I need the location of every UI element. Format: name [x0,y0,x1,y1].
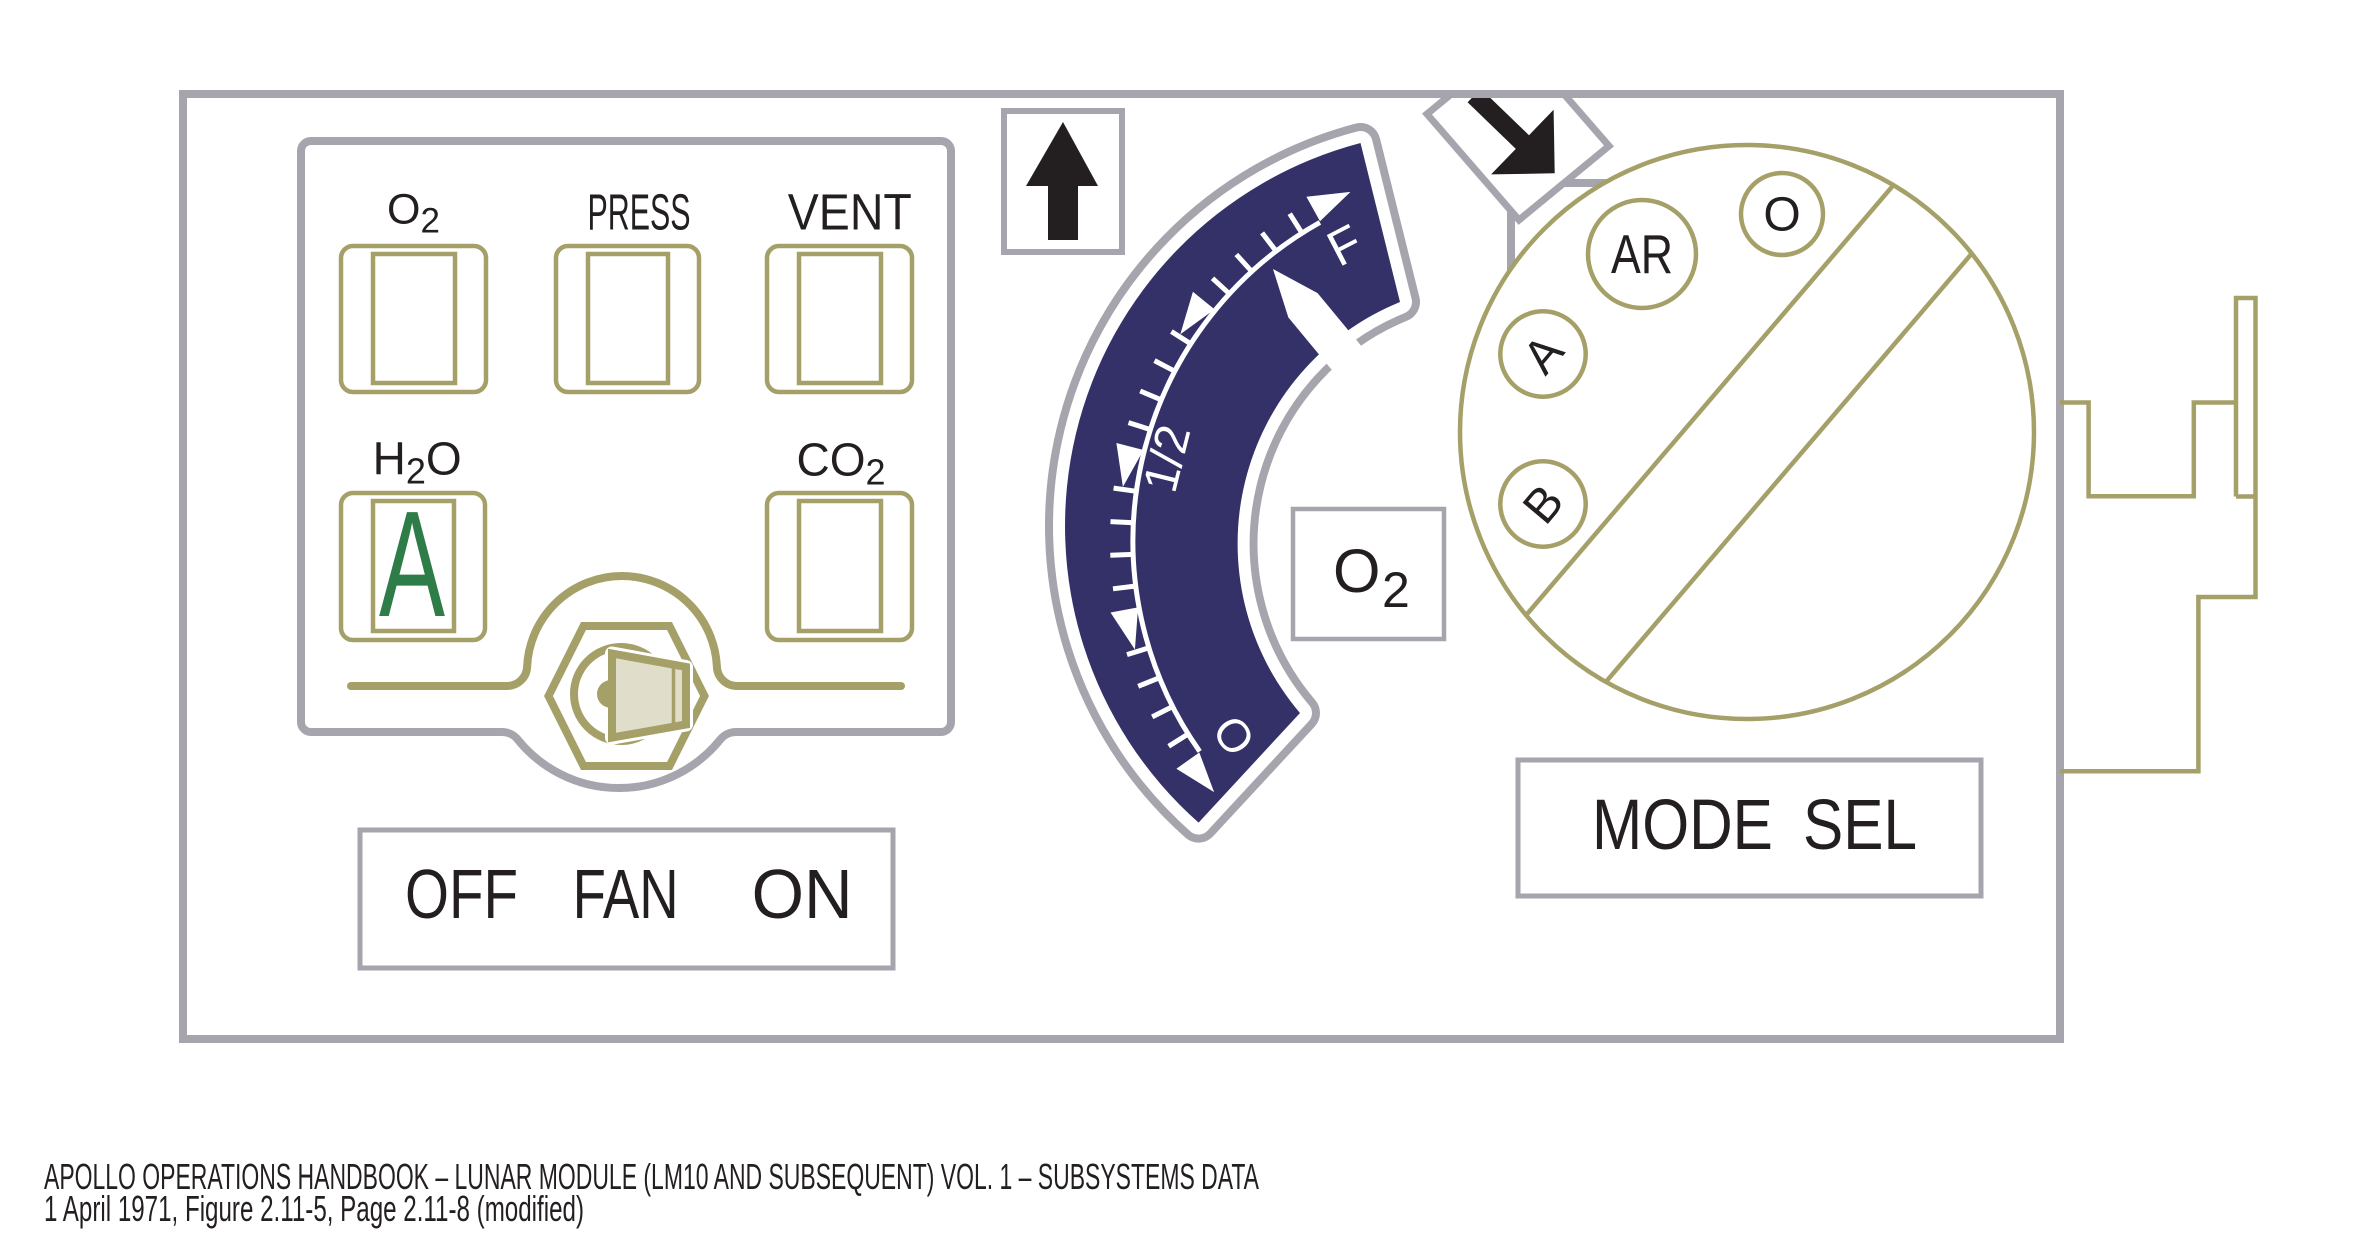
svg-text:AR: AR [1611,223,1673,285]
svg-text:O: O [1763,189,1800,242]
svg-text:FAN: FAN [573,855,679,933]
svg-text:PRESS: PRESS [588,184,691,241]
svg-text:VENT: VENT [788,184,912,241]
svg-text:ON: ON [752,855,853,933]
svg-text:O: O [1333,537,1380,605]
svg-text:2: 2 [1382,562,1410,618]
svg-text:1 April 1971, Figure 2.11-5, P: 1 April 1971, Figure 2.11-5, Page 2.11-8… [44,1188,584,1229]
svg-text:OFF: OFF [405,855,518,933]
svg-text:MODE SEL: MODE SEL [1592,786,1917,865]
svg-text:A: A [379,479,445,648]
